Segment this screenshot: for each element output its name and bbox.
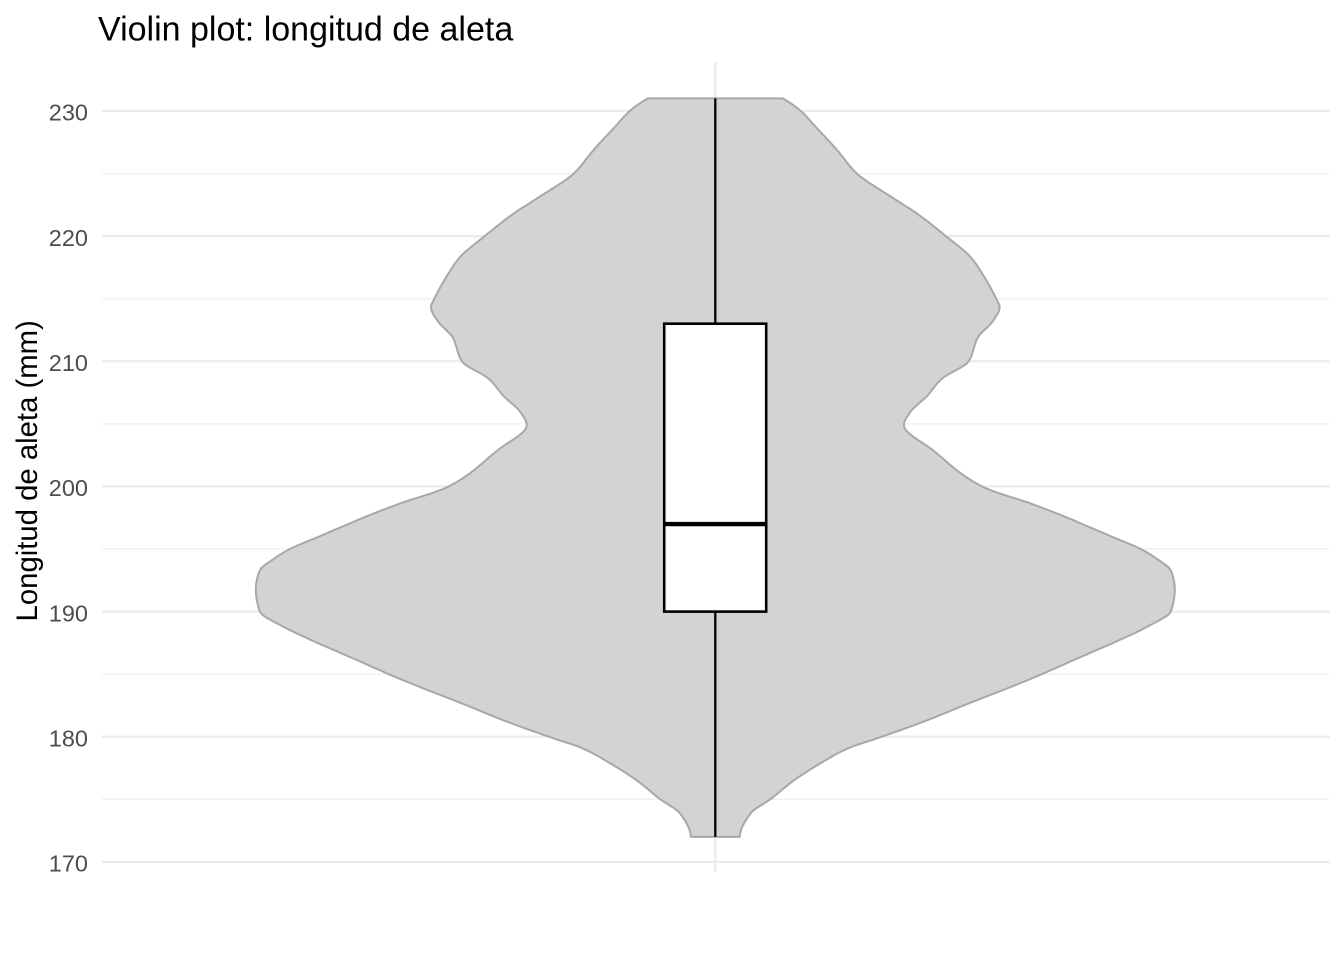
- svg-text:Violin plot: longitud de aleta: Violin plot: longitud de aleta: [98, 11, 513, 49]
- svg-text:190: 190: [49, 600, 88, 626]
- svg-text:180: 180: [49, 726, 88, 752]
- svg-text:230: 230: [49, 100, 88, 126]
- svg-text:210: 210: [49, 350, 88, 376]
- svg-text:Longitud de aleta (mm): Longitud de aleta (mm): [11, 320, 44, 621]
- svg-text:200: 200: [49, 475, 88, 501]
- svg-text:170: 170: [49, 851, 88, 877]
- svg-text:220: 220: [49, 225, 88, 251]
